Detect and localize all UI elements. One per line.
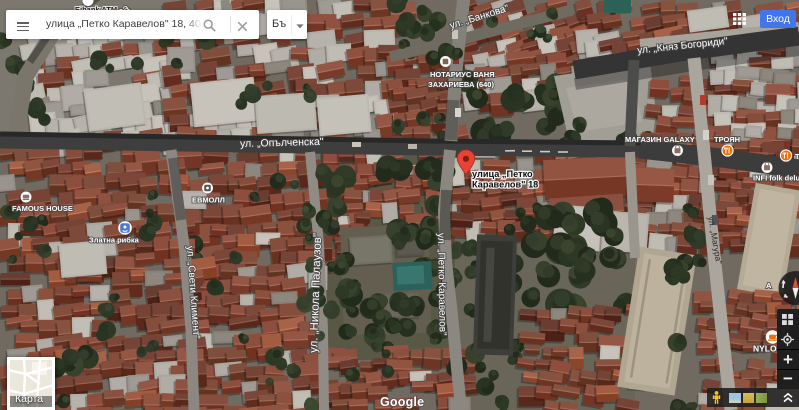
- svg-text:Google: Google: [380, 395, 424, 409]
- svg-text:T: T: [795, 152, 799, 161]
- svg-text:ЗАХАРИЕВА (640): ЗАХАРИЕВА (640): [428, 80, 494, 89]
- svg-text:Златна рибка: Златна рибка: [89, 236, 140, 245]
- svg-text:МАГАЗИН GALAXY: МАГАЗИН GALAXY: [625, 135, 695, 144]
- svg-text:улица „Петко: улица „Петко: [472, 169, 533, 179]
- svg-text:НОТАРИУС ВАНЯ: НОТАРИУС ВАНЯ: [430, 70, 495, 79]
- svg-text:ул. „Опълченска": ул. „Опълченска": [240, 136, 324, 150]
- svg-text:Каравелов" 18: Каравелов" 18: [472, 180, 538, 190]
- svg-text:ул. „Петко Каравелов": ул. „Петко Каравелов": [435, 233, 448, 336]
- svg-text:А: А: [766, 281, 772, 290]
- svg-text:ТРОЯН: ТРОЯН: [714, 135, 740, 144]
- svg-text:ЕВМОЛЛ: ЕВМОЛЛ: [192, 196, 225, 205]
- svg-text:FAMOUS HOUSE: FAMOUS HOUSE: [12, 204, 73, 213]
- svg-text:INFI folk delu: INFI folk delu: [753, 174, 799, 183]
- svg-text:NYLO: NYLO: [753, 344, 777, 354]
